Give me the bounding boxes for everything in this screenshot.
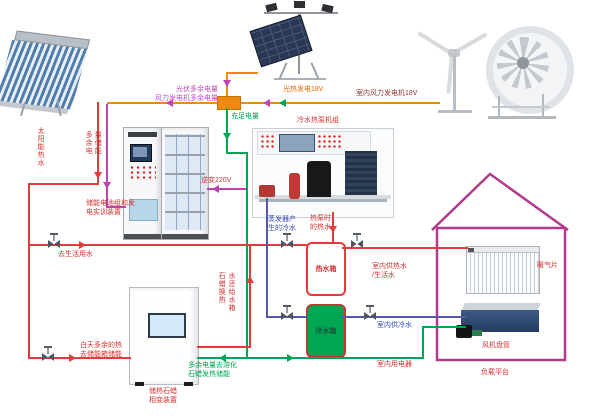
fan-hub [517,57,529,69]
hp-hot-label: 热泵时 的热水 [310,214,331,232]
indoor-hot-label: 室内供热水 /生活水 [372,262,407,280]
pv-gen-label: 光热发电18V [283,85,323,94]
melt-paraffin-label: 多余电量去溶化 石蜡发热储能 [188,361,237,379]
surplus-line-vert [106,104,108,208]
heat-pump-bench [252,128,394,218]
pv-panel [249,15,312,68]
indoor-cold-label: 室内供冷水 [377,321,412,330]
cabinet-vent [128,132,157,137]
green-power-vert1 [226,108,228,154]
valve-icon [280,233,294,249]
surplus-store-label: 多余电量储能 [84,131,102,157]
evap-cold-label: 蒸发器产 生的冷水 [268,215,296,233]
green-power-riser [422,326,424,359]
collector-tubes [0,40,88,110]
cold-water-tank: 冷水箱 [306,304,346,358]
arrow-up-icon [246,276,254,283]
battery-device-label: 储能电池组和发 电实训装置 [86,199,135,217]
cabinet-base [162,234,208,239]
fan-unit [480,22,570,122]
schematic-diagram: 热水箱 冷水箱 [0,0,600,419]
paraffin-return-label-right: 水还给水箱 [227,272,236,312]
fan-frame-base [488,116,556,119]
hot-water-tank: 热水箱 [306,242,346,296]
bench-buttons [317,134,343,150]
cabinet-buttons [129,165,156,179]
radiator-label: 暖气片 [537,261,558,270]
fan-coil-unit [456,300,544,340]
lamp-crossbar [264,12,338,14]
green-power-vert2 [246,152,248,359]
junction-box [217,96,241,110]
valve-icon [41,346,55,362]
arrow-right-icon [79,241,86,249]
paraffin-return-horiz [197,346,251,348]
solar-water-link [28,183,99,185]
valve-icon [350,233,364,249]
hot-water-tank-label: 热水箱 [316,264,337,274]
radiator-valve-icon [468,248,474,252]
arrow-left-icon [263,99,270,107]
load-platform-label: 负载平台 [481,368,509,377]
valve-icon [363,305,377,321]
arrow-left-icon [279,99,286,107]
radiator-top [467,247,539,253]
power-line-pv-top [226,72,258,74]
inverter-label: 逆变220V [201,176,231,185]
red-vessel [289,173,300,199]
valve-icon [280,305,294,321]
control-cabinet [123,127,162,240]
arrow-down-icon [223,80,231,87]
fan-coil-body [461,310,539,332]
fan-frame-bar [492,106,550,108]
surplus-note-label: 光伏多余电量 风力发电机多余电量 [150,85,218,103]
cabinet-foot [135,382,144,386]
day-surplus-label: 白天多余的热 去储能箱储能 [80,341,122,359]
pump [259,185,275,197]
solar-water-left-vert [28,183,30,359]
cabinet-base [124,234,161,239]
radiator [466,246,540,294]
bench-buttons [260,134,274,150]
chiller-label: 冷水热泵机组 [297,116,339,125]
lamp-head-icon [294,1,305,8]
tracker-base [274,78,326,80]
arrow-left-icon [212,185,219,193]
arrow-down-icon [223,133,231,140]
arrow-right-icon [287,354,294,362]
turbine-base [438,110,472,113]
battery-shelves [165,134,205,230]
indoor-elec-label: 室内用电器 [377,360,412,369]
fan-coil-connector [472,330,482,336]
paraffin-return-vert [249,244,251,348]
bench-screen [279,134,315,152]
condenser [345,151,377,195]
turbine-pole [453,56,456,112]
cold-supply-line [342,316,466,318]
bench-pipe [259,199,387,202]
lamp-head-icon [265,3,277,12]
cold-water-tank-label: 冷水箱 [316,326,337,336]
cabinet-screen-inner [133,147,147,157]
arrow-down-icon [94,172,102,179]
solar-hot-water-label: 太阳能热水 [36,127,45,167]
solar-collector [0,28,93,119]
valve-icon [47,233,61,249]
pv-tracker [240,0,360,84]
paraffin-return-label-left: 石蜡换热 [217,272,226,304]
to-domestic-label: 去生活用水 [58,250,93,259]
cabinet-foot [184,382,193,386]
compressor [307,161,331,197]
green-power-jog [226,152,248,154]
paraffin-device-label: 储热石蜡 相变装置 [149,387,177,405]
green-power-to-fancoil [422,326,466,328]
green-power-horiz [197,357,424,359]
fan-coil-label: 风机盘管 [482,341,510,350]
paraffin-screen [148,313,186,338]
arrow-down-icon [103,182,111,189]
wind-gen-label: 室内风力发电机18V [356,89,417,98]
arrow-right-icon [69,354,76,362]
enough-power-label: 充足电量 [231,112,259,121]
